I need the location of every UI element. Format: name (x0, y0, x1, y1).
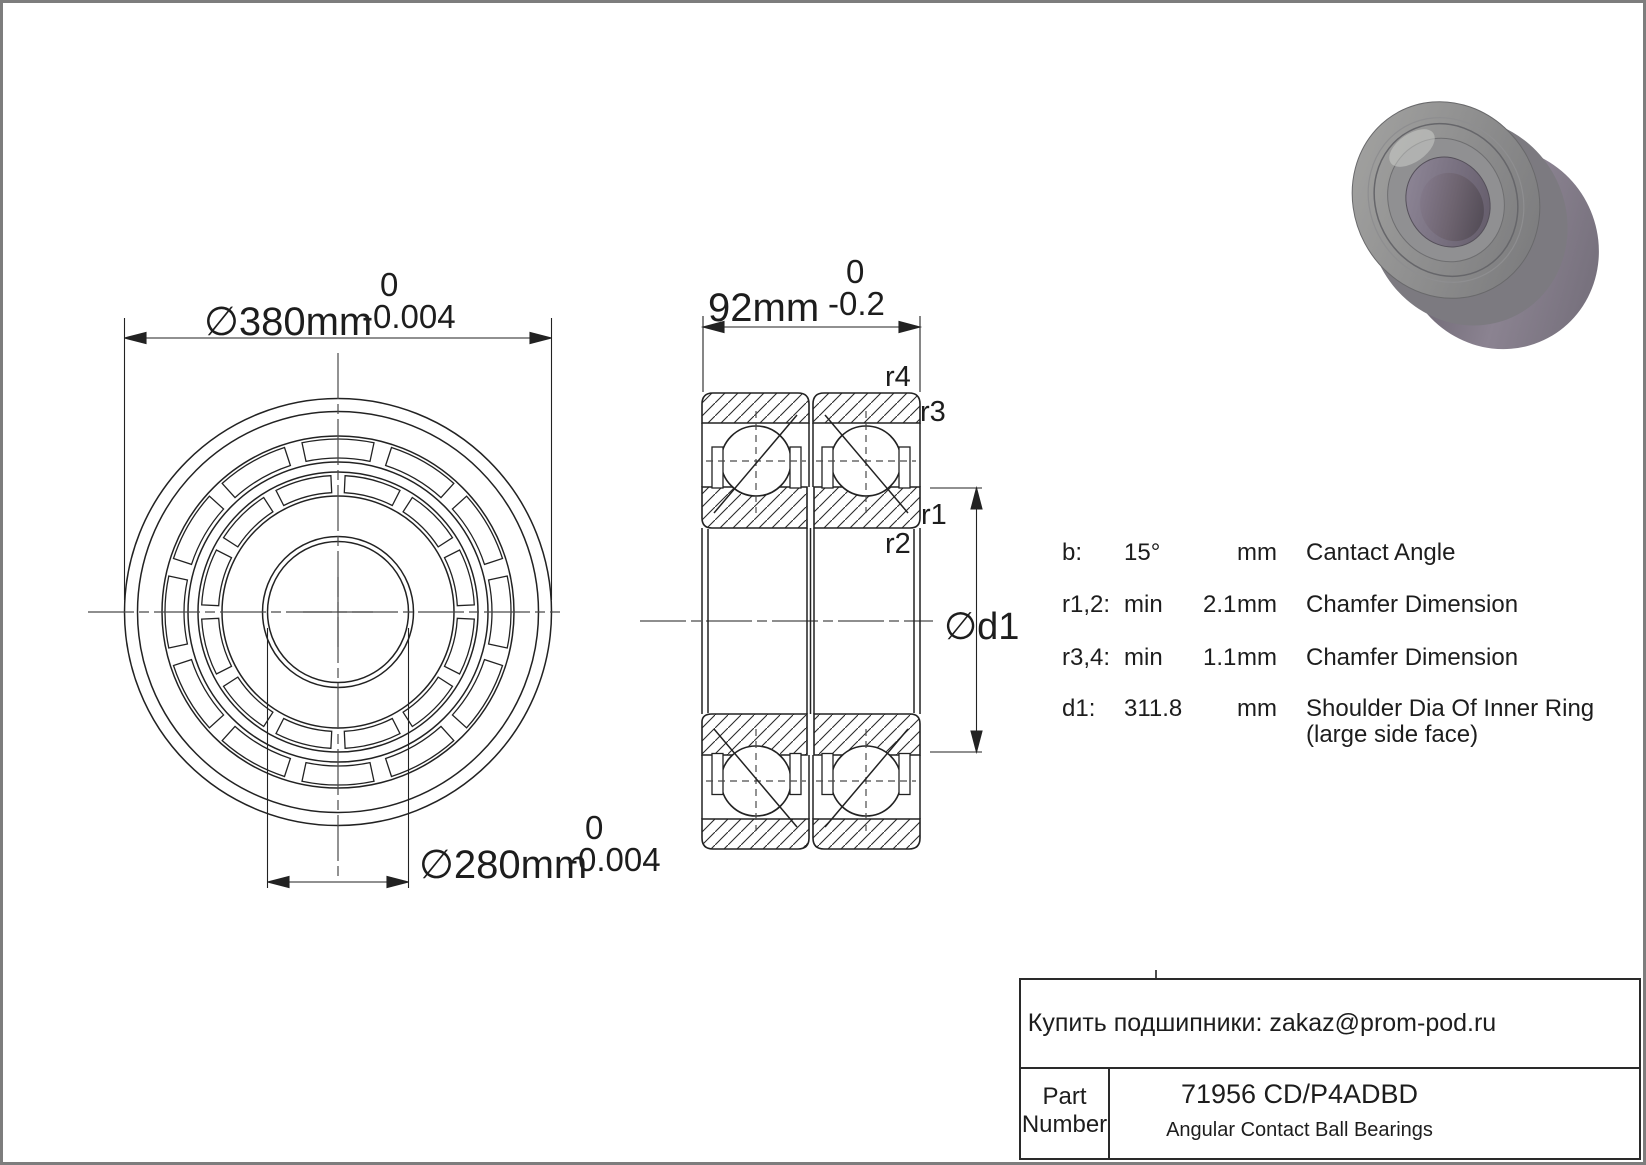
spec-row-chamfer-34: r3,4: min1.1 mm Chamfer Dimension (1062, 645, 1518, 671)
part-number-label: Part Number (1021, 1069, 1110, 1160)
spec-label: r1,2: (1062, 592, 1124, 618)
spec-unit: mm (1237, 696, 1306, 722)
dim-outer-tol-lower: -0.004 (362, 301, 456, 333)
spec-value: 311.8 (1124, 696, 1182, 722)
bearing-3d-render (1318, 69, 1635, 385)
dim-bore-tolerance: 0 -0.004 (567, 812, 661, 876)
spec-row-chamfer-12: r1,2: min2.1 mm Chamfer Dimension (1062, 592, 1518, 618)
bearing-drawing-page: { "drawing": { "dim_outer": {"text": "∅3… (0, 0, 1646, 1165)
spec-label: d1: (1062, 696, 1124, 722)
spec-row-shoulder-dia: d1: 311.8 mm Shoulder Dia Of Inner Ring … (1062, 696, 1594, 748)
dim-outer-tolerance: 0 -0.004 (362, 269, 456, 333)
part-label-line2: Number (1021, 1111, 1108, 1139)
spec-label: r3,4: (1062, 645, 1124, 671)
spec-value: 1.1 (1203, 645, 1236, 671)
dim-bore-tol-lower: -0.004 (567, 844, 661, 876)
dim-width-tol-lower: -0.2 (828, 288, 885, 320)
spec-unit: mm (1237, 645, 1306, 671)
dim-width-tol-upper: 0 (828, 256, 885, 288)
dim-bore-diameter: ∅280mm (419, 842, 587, 888)
dim-shoulder-label: ∅d1 (944, 604, 1019, 649)
dim-width: 92mm (708, 286, 819, 331)
dim-bore-tol-upper: 0 (567, 812, 661, 844)
contact-info: Купить подшипники: zakaz@prom-pod.ru (1021, 980, 1639, 1069)
spec-min: min (1124, 645, 1203, 671)
label-r1: r1 (921, 499, 947, 532)
part-label-line1: Part (1021, 1083, 1108, 1111)
spec-label: b: (1062, 540, 1124, 566)
spec-desc: Cantact Angle (1306, 540, 1455, 566)
label-r4: r4 (885, 361, 911, 394)
spec-row-contact-angle: b: 15° mm Cantact Angle (1062, 540, 1455, 566)
dim-width-tolerance: 0 -0.2 (828, 256, 885, 320)
spec-desc: Shoulder Dia Of Inner Ring (1306, 696, 1594, 722)
spec-desc: Chamfer Dimension (1306, 592, 1518, 618)
spec-desc: Chamfer Dimension (1306, 645, 1518, 671)
spec-unit: mm (1237, 540, 1306, 566)
label-r2: r2 (885, 528, 911, 561)
bearing-category: Angular Contact Ball Bearings (1110, 1119, 1489, 1142)
spec-desc-line2: (large side face) (1306, 722, 1594, 748)
label-r3: r3 (920, 396, 946, 429)
spec-unit: mm (1237, 592, 1306, 618)
spec-min: min (1124, 592, 1203, 618)
title-block: Купить подшипники: zakaz@prom-pod.ru Par… (1019, 978, 1641, 1160)
dim-outer-diameter: ∅380mm (204, 299, 372, 345)
dim-outer-tol-upper: 0 (362, 269, 456, 301)
spec-value: 2.1 (1203, 592, 1236, 618)
part-number-value: 71956 CD/P4ADBD (1110, 1079, 1489, 1110)
spec-value: 15° (1124, 540, 1160, 566)
